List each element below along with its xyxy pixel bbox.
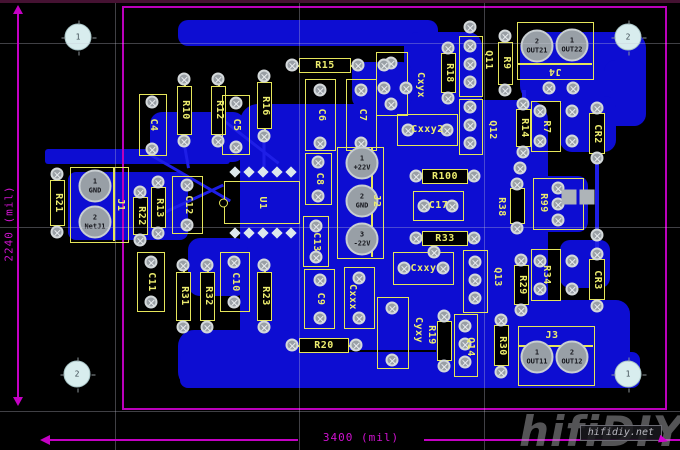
via-pad[interactable] [230, 97, 243, 110]
via-pad[interactable] [438, 360, 451, 373]
label-C9: C9 [315, 292, 325, 305]
via-pad[interactable] [178, 73, 191, 86]
via-pad[interactable] [511, 222, 524, 235]
via-pad[interactable] [438, 310, 451, 323]
connector-pad-OUT11[interactable]: 1OUT11 [521, 341, 554, 374]
via-pad[interactable] [468, 232, 481, 245]
label-Q12: Q12 [487, 120, 497, 140]
via-pad[interactable] [464, 21, 477, 34]
via-pad[interactable] [258, 70, 271, 83]
via-pad[interactable] [145, 296, 158, 309]
via-pad[interactable] [499, 30, 512, 43]
via-pad[interactable] [410, 170, 423, 183]
label-Q14: Q14 [465, 337, 475, 357]
via-pad[interactable] [353, 312, 366, 325]
via-pad[interactable] [437, 262, 450, 275]
via-pad[interactable] [566, 255, 579, 268]
via-pad[interactable] [230, 141, 243, 154]
via-pad[interactable] [464, 137, 477, 150]
hole-tick [62, 38, 66, 39]
via-pad[interactable] [314, 312, 327, 325]
connector-pad-OUT21[interactable]: 2OUT21 [521, 30, 554, 63]
via-pad[interactable] [314, 137, 327, 150]
label-R30: R30 [497, 336, 507, 356]
label-C12: C12 [183, 195, 193, 215]
via-pad[interactable] [177, 321, 190, 334]
connector-pad-OUT12[interactable]: 2OUT12 [556, 341, 589, 374]
via-pad[interactable] [459, 356, 472, 369]
via-pad[interactable] [350, 339, 363, 352]
label-U1: U1 [257, 196, 267, 209]
hole-tick [79, 21, 80, 25]
hole-tick [629, 358, 630, 362]
via-pad[interactable] [134, 186, 147, 199]
via-pad[interactable] [258, 259, 271, 272]
via-pad[interactable] [310, 220, 323, 233]
pad-number: 3 [360, 231, 364, 239]
label-CR2: CR2 [592, 124, 602, 144]
pcb-canvas: 2240 (mil) 3400 (mil) hifiDIY hifidiy.ne… [0, 0, 680, 450]
via-pad[interactable] [442, 92, 455, 105]
label-R100: R100 [432, 172, 458, 182]
label-R13: R13 [154, 198, 164, 218]
label-R20: R20 [314, 341, 334, 351]
dimension-arrow-left-icon [40, 435, 50, 445]
via-pad[interactable] [314, 84, 327, 97]
label-R22: R22 [136, 206, 146, 226]
label-J1: J1 [115, 198, 125, 211]
label-J4: J4 [548, 66, 561, 76]
mounting-hole-2[interactable]: 2 [64, 361, 91, 388]
label-C10: C10 [230, 272, 240, 292]
label-R29: R29 [517, 275, 527, 295]
via-pad[interactable] [464, 101, 477, 114]
via-pad[interactable] [228, 296, 241, 309]
pad-number: 2 [570, 349, 574, 357]
via-pad[interactable] [286, 339, 299, 352]
via-pad[interactable] [514, 162, 527, 175]
via-pad[interactable] [464, 76, 477, 89]
via-pad[interactable] [469, 274, 482, 287]
via-pad[interactable] [145, 256, 158, 269]
pad-net-label: GND [89, 186, 102, 194]
hole-tick [92, 375, 96, 376]
label-C13: C13 [311, 232, 321, 252]
via-pad[interactable] [517, 146, 530, 159]
hole-tick [629, 21, 630, 25]
via-pad[interactable] [515, 254, 528, 267]
dimension-arrow-down-icon [13, 397, 23, 406]
label-R9: R9 [501, 56, 511, 69]
grid-line-horizontal [0, 227, 680, 228]
label-CR3: CR3 [592, 270, 602, 290]
label-Cxxy2: Cxxy2 [411, 125, 444, 135]
via-pad[interactable] [212, 135, 225, 148]
smd-pad[interactable] [580, 190, 595, 205]
via-pad[interactable] [566, 105, 579, 118]
via-pad[interactable] [152, 227, 165, 240]
horizontal-dimension-line [48, 439, 298, 441]
label-C6: C6 [316, 108, 326, 121]
label-R12: R12 [214, 100, 224, 120]
smd-pad[interactable] [562, 190, 577, 205]
pad-net-label: -22V [354, 239, 371, 247]
grid-line-vertical [484, 0, 485, 450]
hole-tick [643, 375, 647, 376]
label-Cxxx: Cxxx [347, 284, 357, 310]
via-pad[interactable] [258, 130, 271, 143]
label-R32: R32 [203, 286, 213, 306]
via-pad[interactable] [228, 256, 241, 269]
via-pad[interactable] [134, 234, 147, 247]
via-pad[interactable] [515, 304, 528, 317]
label-R38: R38 [496, 197, 506, 217]
via-pad[interactable] [286, 59, 299, 72]
label-J2: J2 [371, 194, 381, 207]
top-edge-strip [0, 0, 680, 3]
via-pad[interactable] [591, 102, 604, 115]
label-J3: J3 [545, 331, 558, 341]
grid-line-vertical [115, 0, 116, 450]
via-pad[interactable] [352, 59, 365, 72]
via-pad[interactable] [353, 272, 366, 285]
via-pad[interactable] [534, 105, 547, 118]
label-R15: R15 [315, 61, 335, 71]
connector-pad-OUT22[interactable]: 1OUT22 [556, 29, 589, 62]
via-pad[interactable] [378, 59, 391, 72]
hole-tick [643, 38, 647, 39]
label-R18: R18 [444, 63, 454, 83]
via-pad[interactable] [378, 82, 391, 95]
via-pad[interactable] [410, 232, 423, 245]
component-divider [518, 63, 592, 65]
label-C7: C7 [357, 108, 367, 121]
via-pad[interactable] [400, 82, 413, 95]
label-R10: R10 [180, 100, 190, 120]
via-pad[interactable] [468, 170, 481, 183]
label-Cyxy: Cyxy [413, 317, 423, 343]
pad-number: 2 [93, 214, 97, 222]
label-R16: R16 [260, 96, 270, 116]
label-R7: R7 [541, 120, 551, 133]
pad-number: 1 [535, 349, 539, 357]
label-R31: R31 [179, 286, 189, 306]
via-pad[interactable] [310, 251, 323, 264]
via-pad[interactable] [464, 58, 477, 71]
hole-tick [79, 52, 80, 56]
hole-tick [78, 358, 79, 362]
via-pad[interactable] [511, 178, 524, 191]
via-pad[interactable] [178, 135, 191, 148]
label-Cxyx: Cxyx [415, 72, 425, 98]
label-C4: C4 [148, 118, 158, 131]
via-pad[interactable] [152, 176, 165, 189]
label-R33: R33 [435, 234, 455, 244]
hole-tick [612, 38, 616, 39]
hole-tick [629, 389, 630, 393]
hole-tick [629, 52, 630, 56]
pad-net-label: OUT21 [526, 46, 547, 54]
label-C8: C8 [314, 172, 324, 185]
label-R21: R21 [53, 193, 63, 213]
label-R23: R23 [260, 286, 270, 306]
via-pad[interactable] [517, 98, 530, 111]
ic-notch-icon [219, 198, 228, 207]
component-body [510, 188, 525, 224]
via-pad[interactable] [385, 98, 398, 111]
via-pad[interactable] [201, 259, 214, 272]
via-pad[interactable] [181, 179, 194, 192]
via-pad[interactable] [495, 314, 508, 327]
label-C17: C17 [429, 201, 449, 211]
via-pad[interactable] [386, 302, 399, 315]
pad-net-label: OUT22 [561, 45, 582, 53]
dimension-arrow-up-icon [13, 5, 23, 14]
via-pad[interactable] [146, 96, 159, 109]
label-C11: C11 [146, 272, 156, 292]
vertical-dimension-line [17, 12, 19, 400]
hole-tick [93, 38, 97, 39]
label-R19: R19 [426, 325, 436, 345]
label-Q13: Q13 [492, 267, 502, 287]
vertical-dimension-label: 2240 (mil) [3, 185, 16, 263]
pad-number: 1 [360, 155, 364, 163]
via-pad[interactable] [591, 300, 604, 313]
via-pad[interactable] [314, 274, 327, 287]
via-pad[interactable] [51, 168, 64, 181]
via-pad[interactable] [469, 256, 482, 269]
connector-pad-NetJ1[interactable]: 2NetJ1 [79, 206, 112, 239]
hole-tick [61, 375, 65, 376]
via-pad[interactable] [495, 366, 508, 379]
pad-net-label: GND [356, 201, 369, 209]
via-pad[interactable] [534, 135, 547, 148]
label-R99: R99 [538, 193, 548, 213]
via-pad[interactable] [464, 119, 477, 132]
via-pad[interactable] [258, 321, 271, 334]
via-pad[interactable] [398, 262, 411, 275]
via-pad[interactable] [469, 292, 482, 305]
via-pad[interactable] [464, 40, 477, 53]
label-C5: C5 [231, 118, 241, 131]
via-pad[interactable] [312, 156, 325, 169]
label-R34: R34 [541, 265, 551, 285]
via-pad[interactable] [212, 73, 225, 86]
via-pad[interactable] [499, 84, 512, 97]
connector-pad-+22V[interactable]: 1+22V [346, 147, 379, 180]
via-pad[interactable] [146, 143, 159, 156]
via-pad[interactable] [355, 84, 368, 97]
via-pad[interactable] [181, 219, 194, 232]
pad-number: 2 [535, 38, 539, 46]
watermark-site-badge: hifidiy.net [580, 425, 662, 441]
via-pad[interactable] [591, 152, 604, 165]
via-pad[interactable] [566, 283, 579, 296]
grid-line-vertical [299, 0, 300, 450]
pad-net-label: OUT11 [526, 357, 547, 365]
mounting-hole-1[interactable]: 1 [615, 361, 642, 388]
mounting-hole-1[interactable]: 1 [65, 24, 92, 51]
pad-net-label: OUT12 [561, 357, 582, 365]
label-R14: R14 [519, 118, 529, 138]
label-Cxxy: Cxxy [410, 264, 436, 274]
via-pad[interactable] [591, 229, 604, 242]
via-pad[interactable] [312, 190, 325, 203]
via-pad[interactable] [459, 320, 472, 333]
via-pad[interactable] [566, 135, 579, 148]
connector-pad-GND[interactable]: 1GND [79, 170, 112, 203]
via-pad[interactable] [543, 82, 556, 95]
via-pad[interactable] [428, 246, 441, 259]
horizontal-dimension-label: 3400 (mil) [296, 431, 426, 444]
via-pad[interactable] [386, 354, 399, 367]
pad-net-label: +22V [354, 163, 371, 171]
via-pad[interactable] [177, 259, 190, 272]
via-pad[interactable] [591, 248, 604, 261]
hole-tick [78, 389, 79, 393]
grid-line-horizontal [0, 43, 680, 44]
via-pad[interactable] [201, 321, 214, 334]
component-body [437, 321, 452, 361]
pad-number: 1 [93, 178, 97, 186]
hole-tick [612, 375, 616, 376]
mounting-hole-2[interactable]: 2 [615, 24, 642, 51]
via-pad[interactable] [567, 82, 580, 95]
via-pad[interactable] [552, 214, 565, 227]
pad-number: 2 [360, 193, 364, 201]
